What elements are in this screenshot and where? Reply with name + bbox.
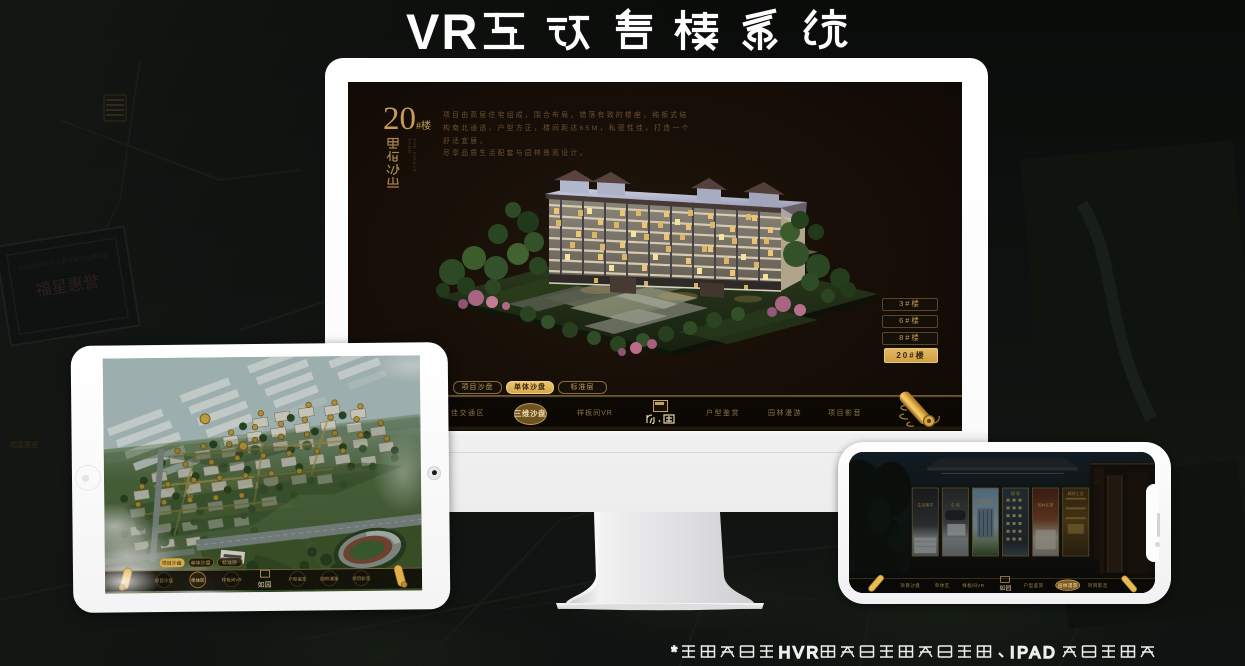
svg-text:实景展示: 实景展示: [977, 499, 993, 504]
svg-text:项目影音: 项目影音: [1088, 582, 1108, 589]
svg-text:HVR: HVR: [779, 644, 821, 662]
svg-text:如园: 如园: [1000, 584, 1012, 592]
svg-text:车 库: 车 库: [951, 503, 960, 508]
svg-text:户型鉴赏: 户型鉴赏: [1024, 582, 1044, 589]
svg-text:园林漫游: 园林漫游: [1058, 582, 1078, 589]
svg-text:*: *: [671, 644, 677, 661]
svg-text:VR: VR: [406, 4, 479, 56]
svg-text:单体区: 单体区: [935, 582, 950, 589]
svg-text:如园: 如园: [258, 580, 272, 589]
svg-text:精装工艺: 精装工艺: [1068, 491, 1084, 496]
svg-text:福星惠誉: 福星惠誉: [10, 440, 38, 449]
svg-text:园林实景: 园林实景: [1038, 503, 1054, 508]
svg-text:IPAD: IPAD: [1010, 644, 1057, 662]
svg-text:楼 栋: 楼 栋: [1011, 491, 1020, 496]
svg-text:样板间VR: 样板间VR: [962, 582, 985, 589]
svg-text:项目沙盘: 项目沙盘: [900, 582, 920, 589]
svg-text:生活美学: 生活美学: [917, 503, 933, 508]
